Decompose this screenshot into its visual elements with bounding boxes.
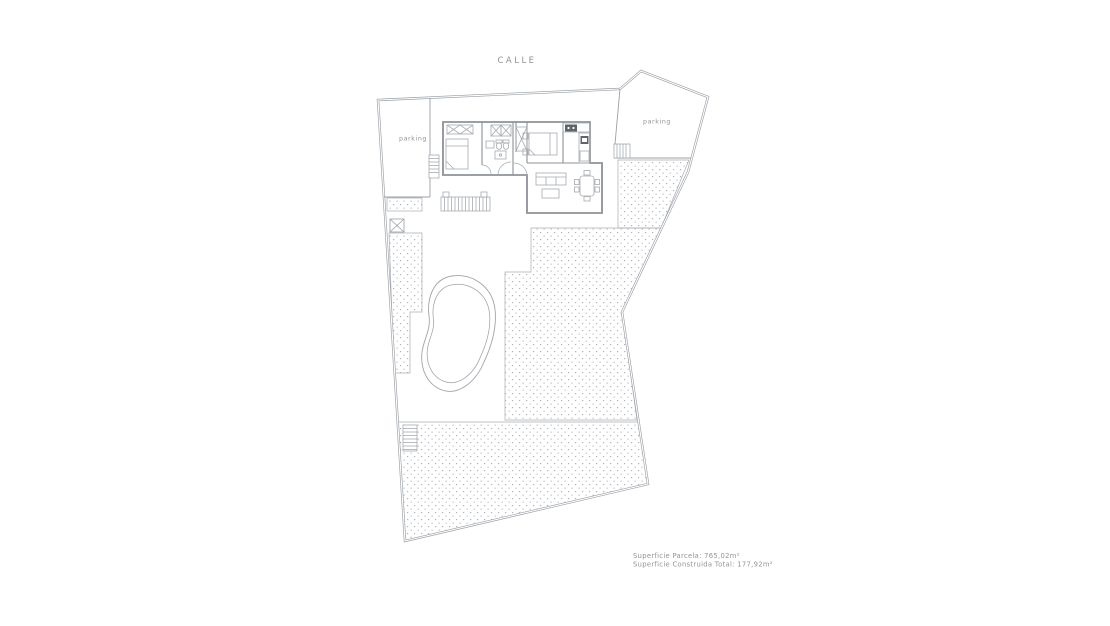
garden-band-left-top bbox=[387, 198, 422, 211]
site-plan-drawing: CALLE parking parking Superficie Parcela… bbox=[0, 0, 1110, 626]
parking-left-area bbox=[384, 98, 430, 197]
stairs-right-parking bbox=[614, 144, 630, 158]
street-label: CALLE bbox=[497, 56, 536, 66]
area-summary: Superficie Parcela: 765,02m² Superficie … bbox=[633, 552, 773, 569]
stairs-terrace bbox=[441, 192, 490, 211]
garden-area-bottom bbox=[398, 422, 648, 541]
utility-box-icon bbox=[390, 219, 404, 232]
garden-area-right bbox=[505, 228, 661, 420]
stove-icon bbox=[565, 125, 577, 132]
stairs-house-left bbox=[429, 155, 439, 178]
stairs-bottom-left bbox=[403, 425, 417, 451]
pool bbox=[422, 276, 496, 392]
parking-right-label: parking bbox=[643, 119, 671, 126]
site-plan-page: CALLE parking parking Superficie Parcela… bbox=[0, 0, 1110, 626]
parking-left-label: parking bbox=[399, 136, 427, 143]
summary-built-area: Superficie Construida Total: 177,92m² bbox=[633, 561, 773, 569]
summary-parcel-area: Superficie Parcela: 765,02m² bbox=[633, 552, 740, 560]
